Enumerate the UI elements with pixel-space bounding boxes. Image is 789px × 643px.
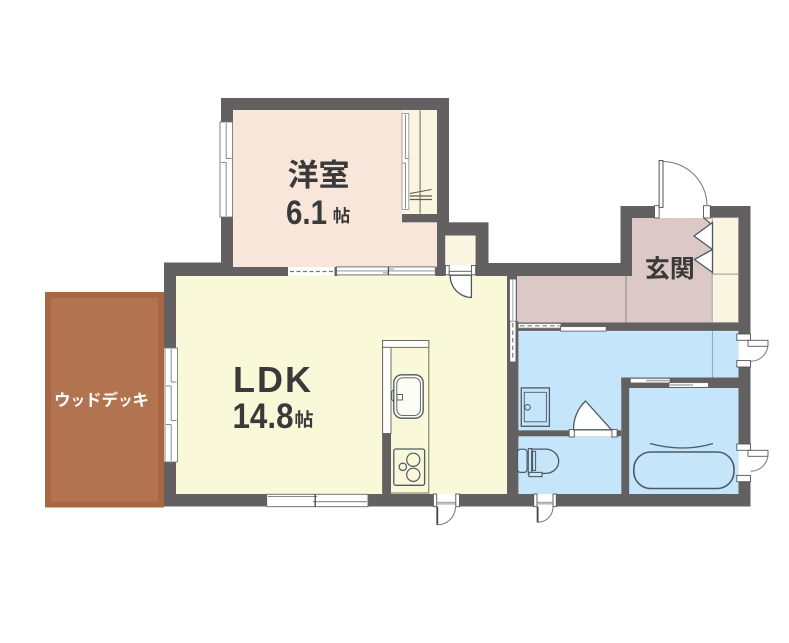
svg-text:6.1: 6.1 (286, 194, 327, 232)
svg-text:LDK: LDK (233, 359, 313, 400)
svg-text:14.8: 14.8 (233, 397, 294, 436)
